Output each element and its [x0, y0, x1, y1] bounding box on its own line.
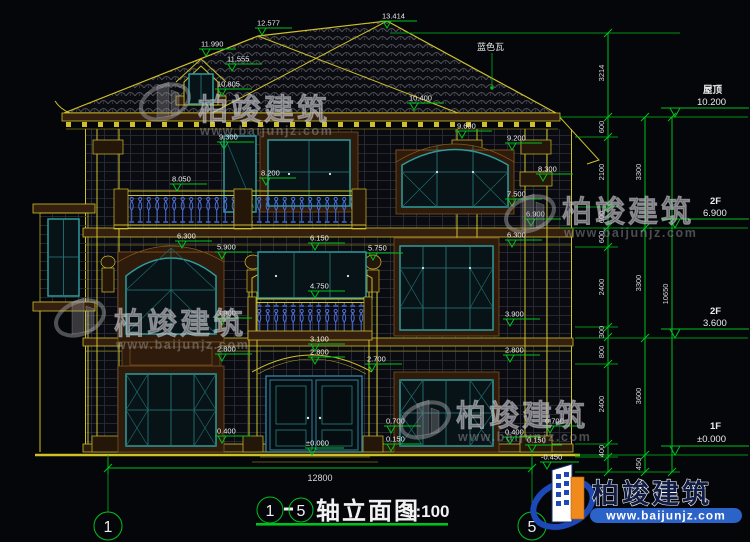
title-axis-end: 5 [297, 503, 306, 520]
svg-text:www.baijunjz.com: www.baijunjz.com [563, 226, 697, 240]
dim-value: 2400 [597, 279, 606, 296]
logo-url: www.baijunjz.com [605, 509, 726, 523]
elevation-value: 9.200 [507, 134, 526, 143]
level-markers: 屋顶 10.200 2F 6.900 2F 3.600 1F ±0.000 [661, 85, 749, 455]
elevation-value: 9.600 [457, 122, 476, 131]
balustrade-3f [114, 189, 366, 229]
dim-value: 3300 [634, 164, 643, 181]
logo-building-orange [571, 477, 584, 519]
entry-steps [252, 452, 378, 462]
elevation-value: 0.150 [386, 435, 405, 444]
dim-value: 2400 [597, 396, 606, 413]
dim-value: 12800 [307, 473, 332, 483]
svg-text:6.900: 6.900 [703, 208, 727, 219]
svg-text:1: 1 [104, 519, 113, 536]
dim-value: 300 [597, 326, 606, 339]
elevation-value: 7.500 [507, 190, 526, 199]
dim-value: 2100 [597, 164, 606, 181]
elevation-value: 10.805 [217, 80, 240, 89]
logo-text: 柏竣建筑 [592, 478, 712, 509]
dim-value: 10650 [661, 284, 670, 305]
elevation-value: 2.800 [310, 348, 329, 357]
level-2f: 2F 3.600 [661, 306, 749, 338]
elevation-value: 5.750 [368, 244, 387, 253]
svg-text:±0.000: ±0.000 [697, 434, 726, 445]
elevation-value: 12.577 [257, 19, 280, 28]
svg-text:屋顶: 屋顶 [703, 85, 723, 96]
dim-value: 3300 [634, 275, 643, 292]
dim-value: 3600 [634, 388, 643, 405]
elevation-value: 0.400 [217, 427, 236, 436]
elevation-value: 5.900 [217, 243, 236, 252]
svg-text:柏竣建筑: 柏竣建筑 [198, 93, 330, 127]
elevation-value: 11.990 [201, 40, 223, 49]
dim-value: 600 [597, 121, 606, 134]
elevation-value: 4.750 [310, 282, 329, 291]
window-2f-right [394, 238, 499, 336]
svg-text:3.600: 3.600 [703, 318, 727, 329]
brand-logo: 柏竣建筑 www.baijunjz.com [526, 464, 742, 536]
elevation-value: -0.450 [541, 453, 562, 462]
elevation-value: 3.900 [505, 310, 524, 319]
title-axis-start: 1 [266, 503, 275, 520]
svg-text:1F: 1F [710, 421, 721, 432]
elevation-value: 11.555 [227, 55, 249, 64]
elevation-value: 8.200 [261, 169, 280, 178]
svg-text:2F: 2F [710, 306, 721, 317]
cad-canvas: 13.414 12.577 11.990 11.555 10.805 10.40… [0, 0, 750, 542]
window-1f-left [118, 366, 224, 452]
elevation-value: 2.800 [505, 346, 524, 355]
title-dash [284, 508, 293, 511]
svg-text:www.baijunjz.com: www.baijunjz.com [457, 430, 591, 444]
svg-text:10.200: 10.200 [697, 97, 726, 108]
title-underline [256, 523, 448, 526]
svg-text:www.baijunjz.com: www.baijunjz.com [115, 338, 249, 352]
svg-text:柏竣建筑: 柏竣建筑 [562, 195, 694, 229]
elevation-mark: 13.414 [380, 12, 417, 29]
svg-text:2F: 2F [710, 196, 721, 207]
elevation-drawing: 13.414 12.577 11.990 11.555 10.805 10.40… [0, 0, 750, 542]
elevation-value: 6.150 [310, 234, 329, 243]
elevation-value: 8.050 [172, 175, 191, 184]
window-3f-arched [396, 144, 514, 214]
elevation-value: 8.300 [538, 165, 557, 174]
dim-value: 3214 [597, 65, 606, 82]
elevation-value: 2.700 [367, 355, 386, 364]
level-roof: 屋顶 10.200 [661, 85, 749, 117]
dim-value: 400 [597, 445, 606, 458]
dim-value: 800 [597, 346, 606, 359]
elevation-value: 13.414 [382, 12, 405, 21]
drawing-title: 1 5 轴立面图 1:100 [256, 497, 449, 526]
svg-text:www.baijunjz.com: www.baijunjz.com [199, 124, 333, 138]
roof-tile-label: 蓝色瓦 [477, 41, 504, 52]
elevation-value: 3.100 [310, 335, 329, 344]
dim-value: 450 [634, 458, 643, 471]
title-text: 轴立面图 [316, 497, 420, 525]
level-1f: 1F ±0.000 [661, 421, 749, 455]
watermark-bottom: 柏竣建筑 www.baijunjz.com [396, 396, 592, 444]
svg-text:柏竣建筑: 柏竣建筑 [114, 307, 246, 341]
elevation-value: 10.400 [409, 94, 432, 103]
elevation-value: 6.300 [177, 232, 196, 241]
svg-text:柏竣建筑: 柏竣建筑 [456, 399, 588, 433]
title-scale: 1:100 [406, 502, 449, 521]
watermark-right: 柏竣建筑 www.baijunjz.com [501, 190, 698, 240]
elevation-value: ±0.000 [306, 439, 329, 448]
